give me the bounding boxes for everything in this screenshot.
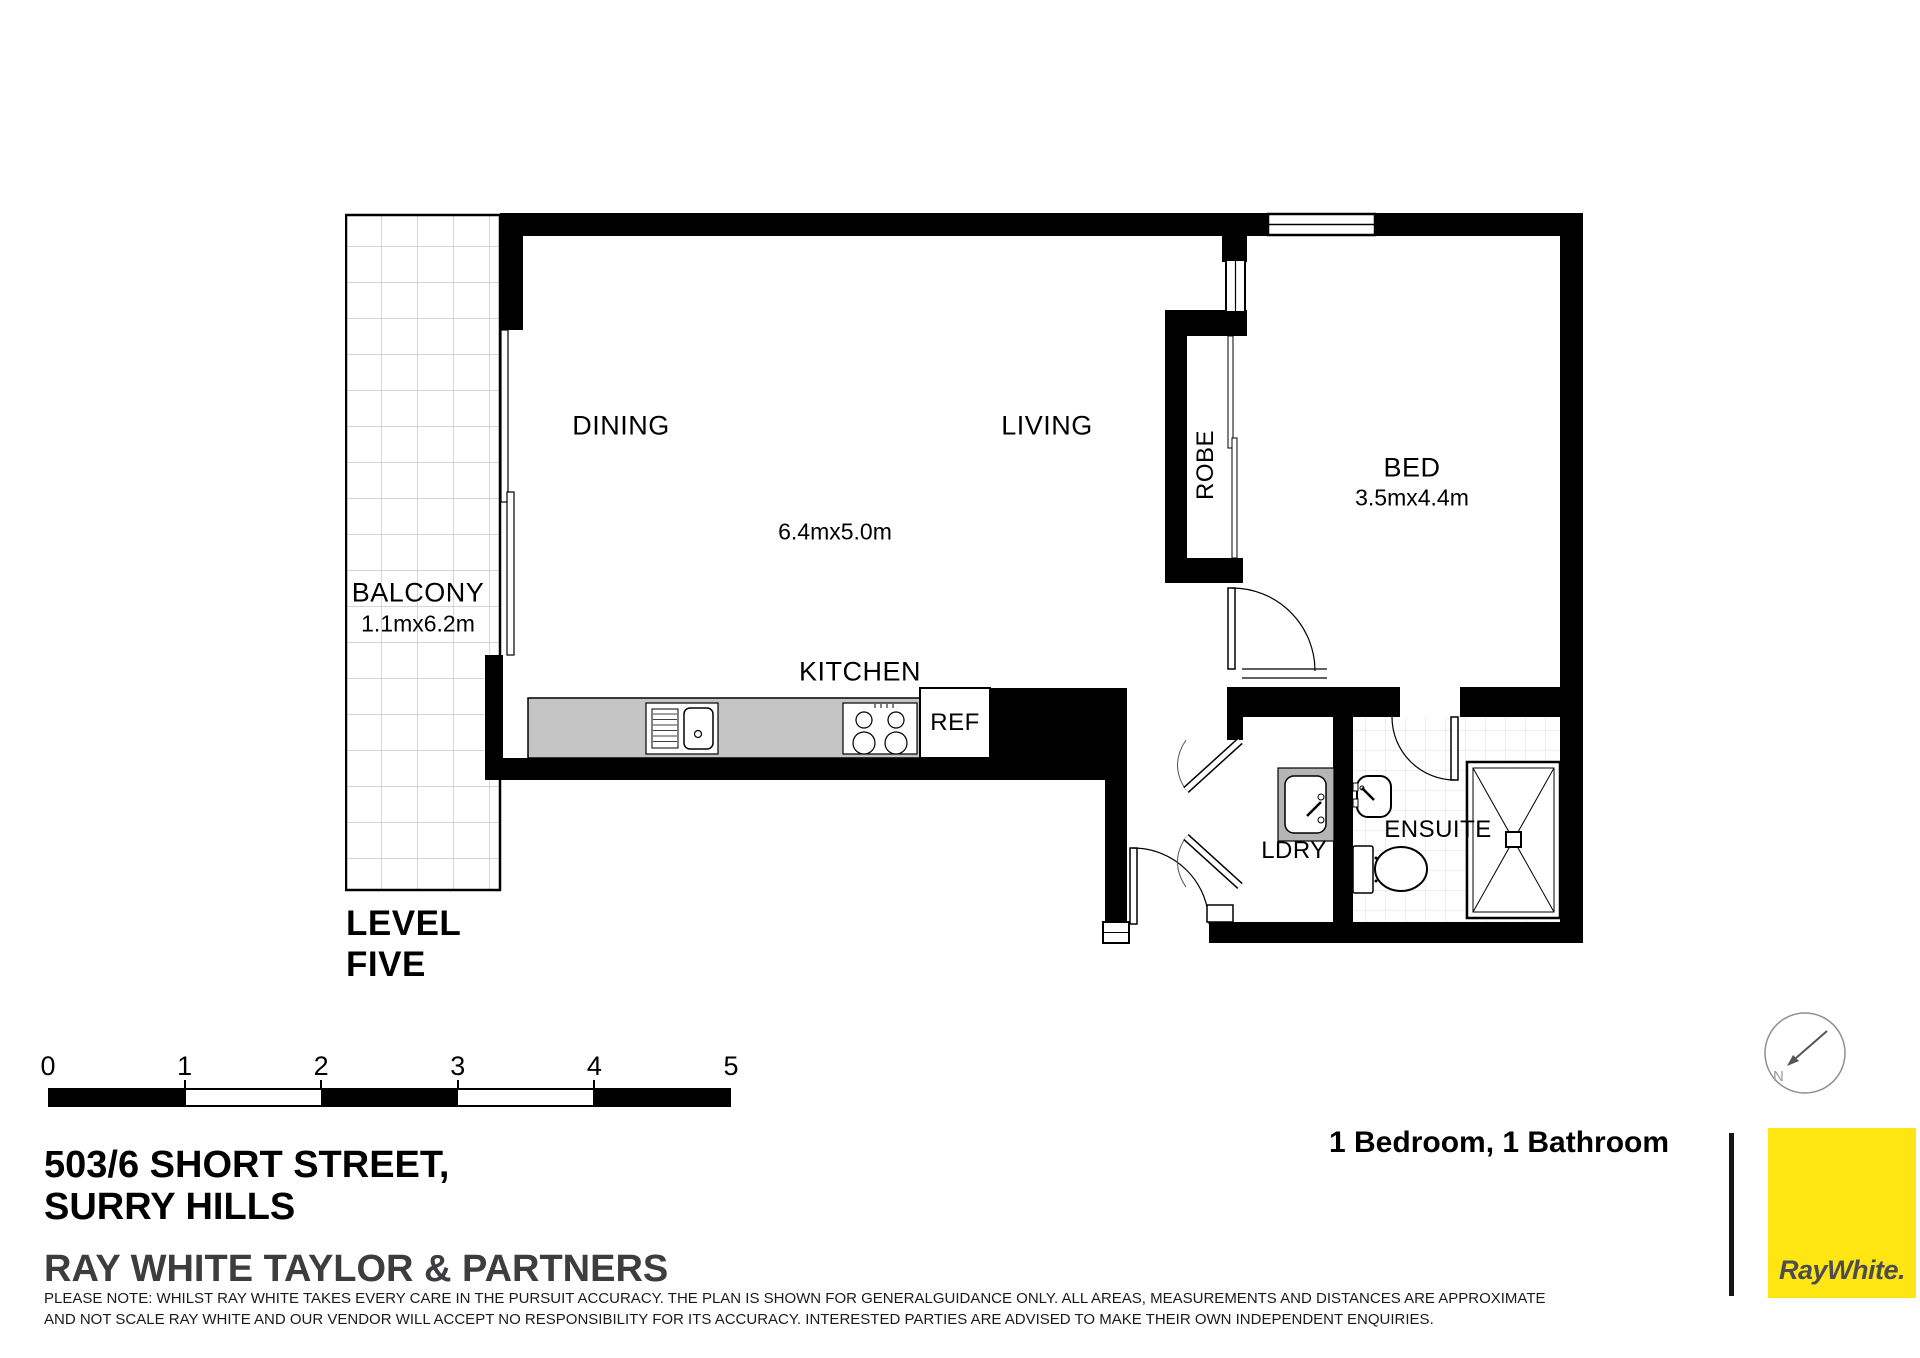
address-line1: 503/6 SHORT STREET, [44,1144,449,1186]
footer-divider [1729,1133,1734,1296]
dining-label: DINING [572,411,670,442]
level-line2: FIVE [346,944,461,985]
address-line2: SURRY HILLS [44,1186,449,1228]
bedroom-door [1228,588,1327,678]
ensuite-label: ENSUITE [1384,816,1492,844]
level-label: LEVEL FIVE [346,903,461,985]
ray-white-logo-text: RayWhite. [1768,1255,1916,1286]
window-entry-side [1103,922,1129,943]
living-dining-dimensions: 6.4mx5.0m [778,519,892,546]
compass-icon: N [1757,1005,1857,1105]
bed-dimensions: 3.5mx4.4m [1355,485,1469,512]
ray-white-logo: RayWhite. [1768,1128,1916,1298]
laundry-bifold-doors [1178,740,1241,922]
property-address: 503/6 SHORT STREET, SURRY HILLS [44,1144,449,1228]
scale-tick-3: 3 [450,1051,465,1082]
scale-tick-4: 4 [587,1051,602,1082]
window-bed-top [1268,214,1375,235]
bed-bath-summary: 1 Bedroom, 1 Bathroom [1329,1126,1669,1160]
ensuite-basin [1353,776,1391,817]
compass-north-label: N [1773,1068,1784,1085]
entry-door [1130,848,1209,924]
scale-bar-strip [48,1088,731,1107]
balcony-dimensions: 1.1mx6.2m [361,611,475,638]
balcony-sliding-door [501,330,514,655]
floorplan-page: BALCONY 1.1mx6.2m DINING LIVING 6.4mx5.0… [0,0,1920,1358]
kitchen-label: KITCHEN [799,657,921,688]
cooktop [843,703,917,754]
window-robe-top [1226,260,1245,312]
floor-plan: BALCONY 1.1mx6.2m DINING LIVING 6.4mx5.0… [345,210,1583,945]
scale-tick-5: 5 [723,1051,738,1082]
disclaimer-text: PLEASE NOTE: WHILST RAY WHITE TAKES EVER… [44,1288,1574,1330]
balcony-label: BALCONY [352,578,485,609]
scale-tick-1: 1 [177,1051,192,1082]
bed-label: BED [1383,453,1440,484]
ldry-label: LDRY [1261,837,1327,865]
laundry-tub [1278,768,1334,841]
level-line1: LEVEL [346,903,461,944]
kitchen-sink [646,703,718,754]
robe-sliding-door [1228,336,1237,558]
balcony-floor [346,215,500,890]
living-label: LIVING [1001,411,1093,442]
scale-tick-0: 0 [40,1051,55,1082]
robe-label: ROBE [1192,430,1220,500]
toilet [1353,846,1427,893]
agency-name: RAY WHITE TAYLOR & PARTNERS [44,1248,668,1291]
ref-label: REF [930,709,980,737]
scale-tick-2: 2 [314,1051,329,1082]
